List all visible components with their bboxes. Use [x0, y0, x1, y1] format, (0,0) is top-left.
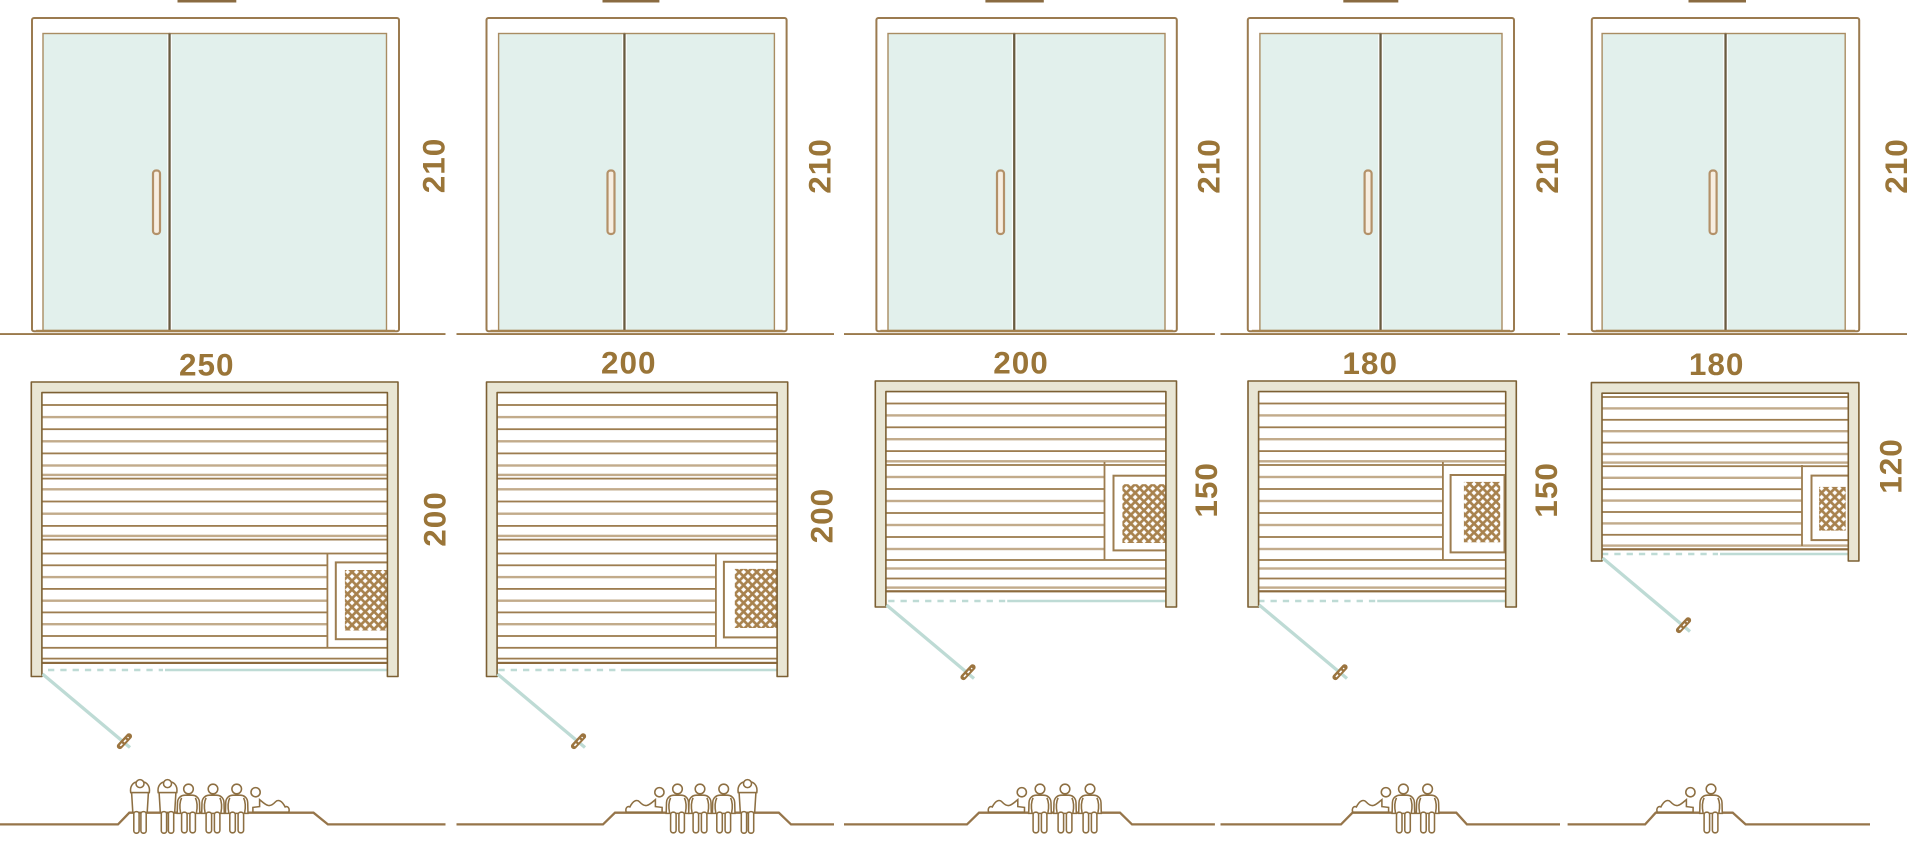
svg-text:180: 180: [1689, 346, 1745, 382]
svg-text:200: 200: [601, 345, 657, 381]
svg-text:210: 210: [1529, 138, 1565, 194]
svg-text:210: 210: [1191, 138, 1227, 194]
svg-text:180: 180: [1342, 345, 1398, 381]
svg-text:150: 150: [1528, 462, 1564, 518]
svg-text:210: 210: [802, 138, 838, 194]
svg-text:250: 250: [179, 347, 235, 383]
svg-text:200: 200: [417, 491, 453, 547]
svg-text:200: 200: [803, 488, 839, 544]
svg-text:150: 150: [1188, 462, 1224, 518]
svg-text:210: 210: [416, 138, 452, 194]
svg-text:120: 120: [1873, 438, 1909, 494]
svg-text:200: 200: [993, 345, 1049, 381]
svg-text:210: 210: [1878, 138, 1914, 194]
